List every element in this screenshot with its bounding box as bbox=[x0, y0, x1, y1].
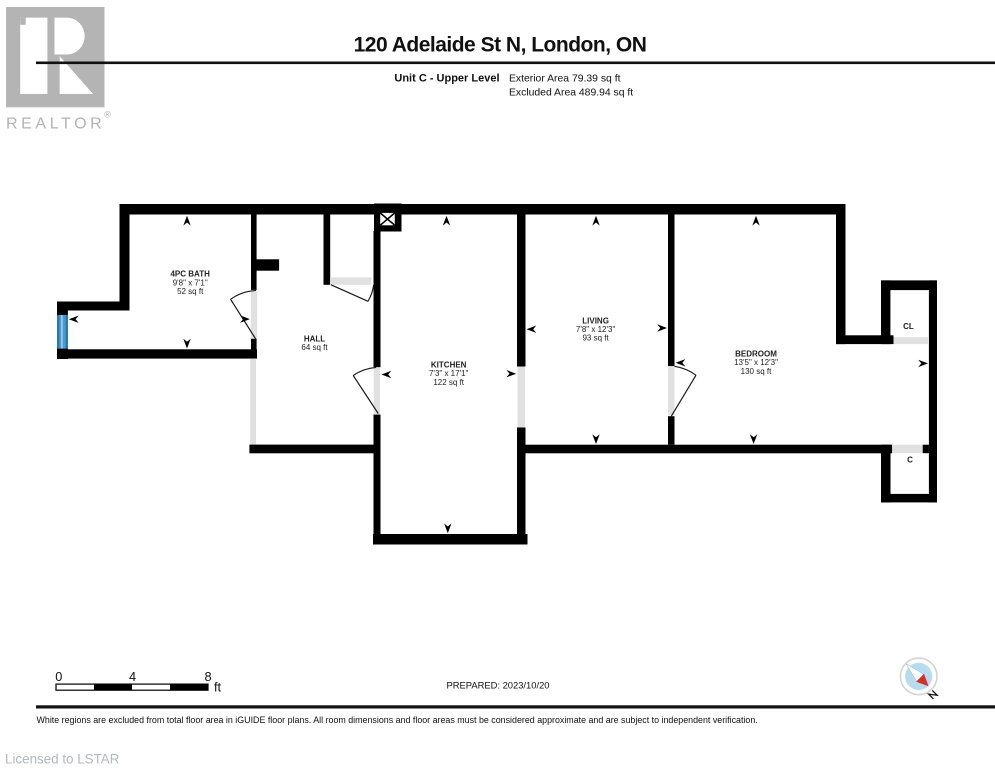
svg-text:4: 4 bbox=[129, 669, 136, 684]
svg-text:120 Adelaide St N, London, ON: 120 Adelaide St N, London, ON bbox=[354, 33, 647, 56]
svg-text:9'8" x 7'1": 9'8" x 7'1" bbox=[173, 278, 208, 287]
svg-text:ft: ft bbox=[214, 680, 222, 695]
svg-text:130 sq ft: 130 sq ft bbox=[741, 367, 772, 376]
svg-text:0: 0 bbox=[55, 669, 62, 684]
svg-text:Excluded Area 489.94 sq ft: Excluded Area 489.94 sq ft bbox=[509, 87, 633, 98]
svg-text:KITCHEN: KITCHEN bbox=[431, 360, 467, 369]
svg-text:93 sq ft: 93 sq ft bbox=[582, 334, 609, 343]
svg-text:CL: CL bbox=[903, 322, 914, 331]
svg-text:Licensed to LSTAR: Licensed to LSTAR bbox=[5, 752, 120, 767]
svg-text:4PC BATH: 4PC BATH bbox=[170, 270, 210, 279]
svg-text:13'5" x 12'3": 13'5" x 12'3" bbox=[734, 358, 778, 367]
svg-text:64 sq ft: 64 sq ft bbox=[301, 343, 328, 352]
svg-text:BEDROOM: BEDROOM bbox=[735, 349, 777, 358]
svg-text:Unit C - Upper Level: Unit C - Upper Level bbox=[394, 72, 499, 84]
svg-text:122 sq ft: 122 sq ft bbox=[433, 378, 464, 387]
svg-text:C: C bbox=[907, 456, 913, 465]
svg-text:®: ® bbox=[104, 110, 111, 120]
svg-text:7'3" x 17'1": 7'3" x 17'1" bbox=[429, 369, 469, 378]
svg-text:52 sq ft: 52 sq ft bbox=[177, 287, 204, 296]
svg-text:REALTOR: REALTOR bbox=[6, 116, 105, 133]
svg-text:Exterior Area 79.39 sq ft: Exterior Area 79.39 sq ft bbox=[509, 73, 621, 84]
svg-text:PREPARED: 2023/10/20: PREPARED: 2023/10/20 bbox=[446, 680, 549, 691]
svg-text:8: 8 bbox=[204, 669, 211, 684]
svg-text:White regions are excluded fro: White regions are excluded from total fl… bbox=[37, 715, 758, 725]
